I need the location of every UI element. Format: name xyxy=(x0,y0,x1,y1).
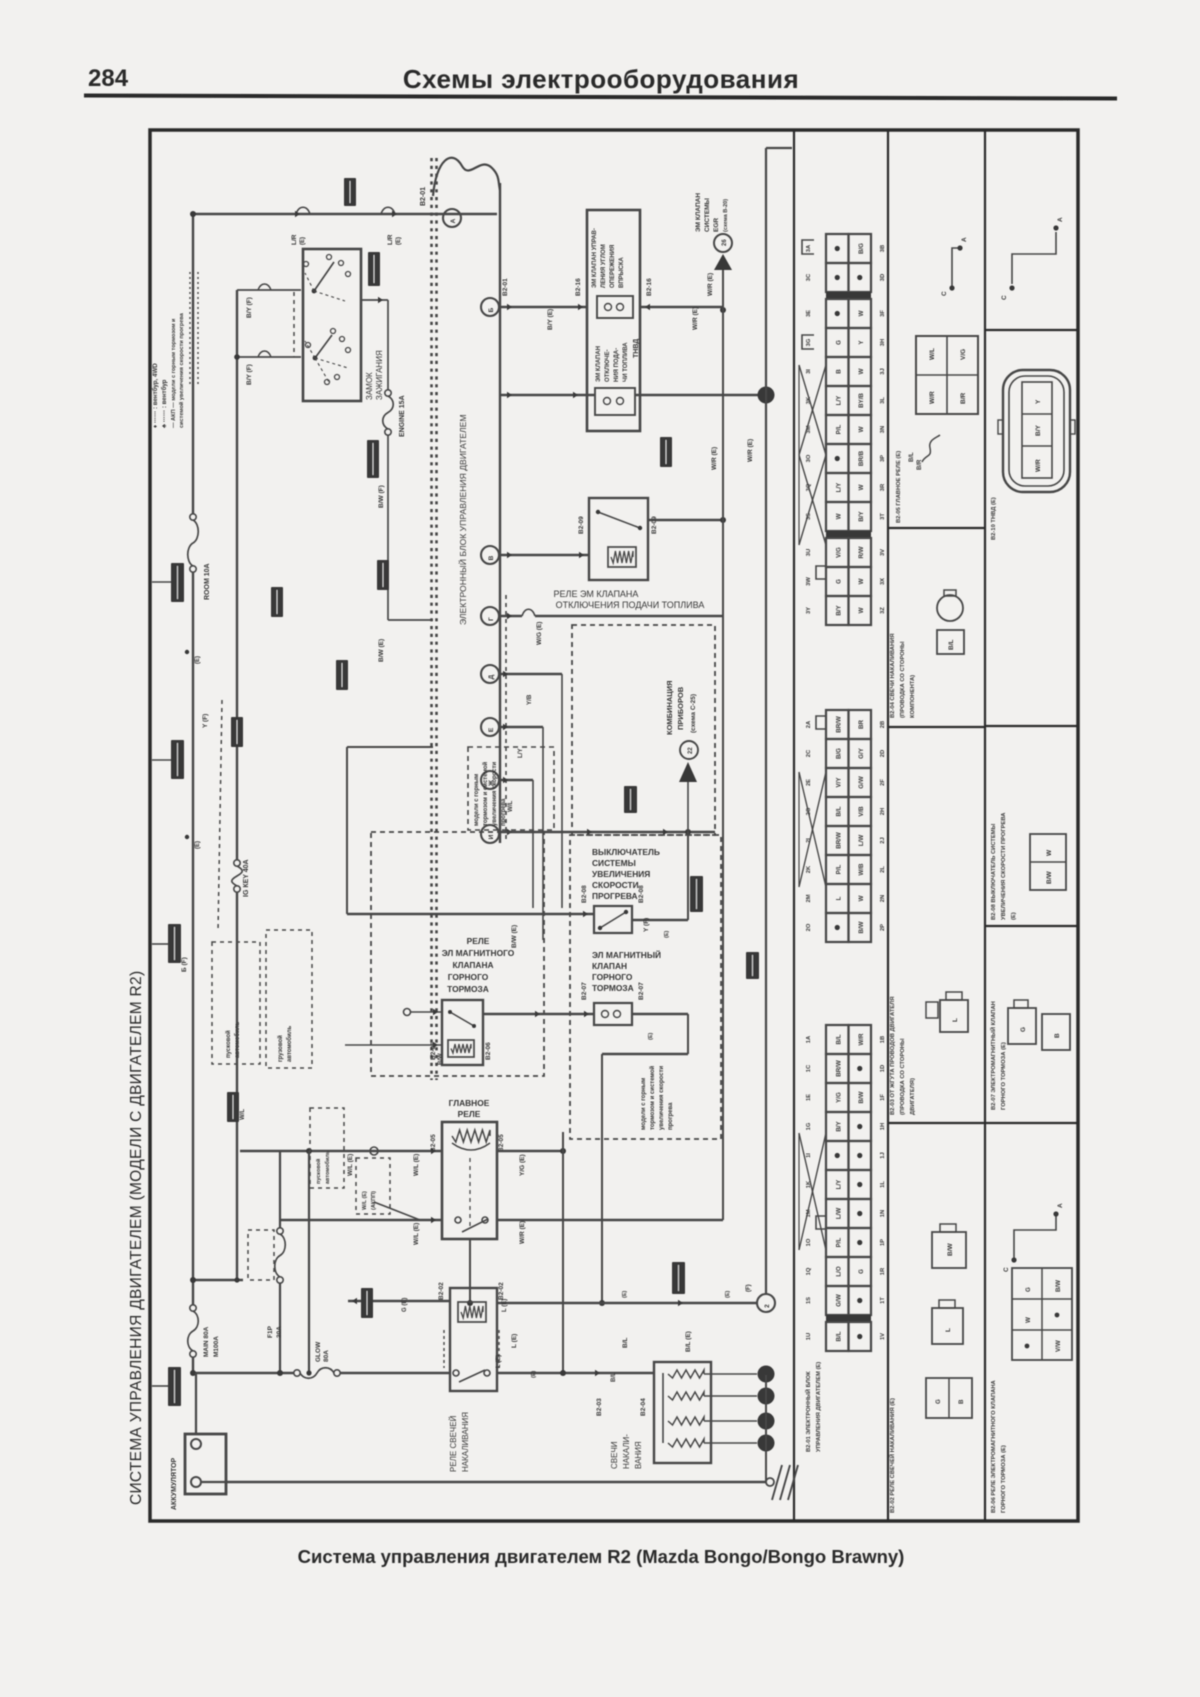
svg-text:W/R (Е): W/R (Е) xyxy=(707,273,714,296)
svg-text:В2-10 ТНВД (Е): В2-10 ТНВД (Е) xyxy=(991,497,997,540)
svg-text:ТОРМОЗА: ТОРМОЗА xyxy=(447,984,489,994)
svg-text:B/W: B/W xyxy=(1055,1280,1062,1292)
svg-text:P/L: P/L xyxy=(835,864,842,874)
svg-text:30А: 30А xyxy=(276,1326,283,1338)
svg-text:G: G xyxy=(835,579,842,584)
svg-text:РЕЛЕ: РЕЛЕ xyxy=(467,936,490,946)
svg-text:W/R (Е): W/R (Е) xyxy=(747,439,754,462)
svg-text:СИСТЕМЫ: СИСТЕМЫ xyxy=(704,198,711,232)
svg-text:BR/B: BR/B xyxy=(858,450,865,466)
svg-text:В2-01: В2-01 xyxy=(420,187,427,206)
svg-text:B: B xyxy=(835,369,842,374)
svg-text:G (Е): G (Е) xyxy=(402,1298,408,1312)
svg-text:Y/G: Y/G xyxy=(835,1092,842,1103)
svg-text:КЛАПАНА: КЛАПАНА xyxy=(452,960,493,970)
svg-text:3I: 3I xyxy=(806,369,812,374)
svg-text:B/L (Е): B/L (Е) xyxy=(685,1331,692,1352)
svg-text:ГОРНОГО: ГОРНОГО xyxy=(592,972,633,982)
svg-text:W/B: W/B xyxy=(858,863,865,876)
svg-text:1I: 1I xyxy=(806,1153,812,1158)
svg-text:W/L (Е): W/L (Е) xyxy=(362,1191,368,1210)
svg-text:Д: Д xyxy=(488,674,495,679)
svg-text:B/G: B/G xyxy=(835,748,842,759)
svg-text:Схемы электрооборудования: Схемы электрооборудования xyxy=(403,64,799,94)
svg-text:B/Y: B/Y xyxy=(1035,425,1042,437)
svg-text:R/W: R/W xyxy=(858,546,865,558)
svg-text:М100А: М100А xyxy=(213,1336,220,1357)
svg-text:ЭМ КЛАПАН УПРАВ-: ЭМ КЛАПАН УПРАВ- xyxy=(592,228,598,288)
svg-text:G: G xyxy=(835,340,842,345)
svg-text:BR/W: BR/W xyxy=(835,716,842,733)
svg-text:В2-09: В2-09 xyxy=(578,516,585,534)
svg-text:(Е): (Е) xyxy=(396,237,402,245)
svg-text:B/L: B/L xyxy=(622,1338,629,1349)
svg-text:1U: 1U xyxy=(806,1333,812,1340)
svg-text:1V: 1V xyxy=(880,1333,886,1340)
svg-text:модели с горным: модели с горным xyxy=(641,1077,647,1130)
svg-text:1A: 1A xyxy=(806,1035,812,1043)
svg-text:ЭЛЕКТРОННЫЙ БЛОК УПРАВЛЕНИЯ ДВ: ЭЛЕКТРОННЫЙ БЛОК УПРАВЛЕНИЯ ДВИГАТЕЛЕМ xyxy=(457,414,468,625)
svg-text:2D: 2D xyxy=(880,750,886,757)
svg-text:3O: 3O xyxy=(806,454,812,462)
svg-text:В2-16: В2-16 xyxy=(646,278,653,296)
svg-text:1O: 1O xyxy=(806,1238,812,1246)
svg-text:(Е): (Е) xyxy=(531,1371,537,1379)
svg-text:B/Y (F): B/Y (F) xyxy=(246,297,253,318)
svg-text:АККУМУЛЯТОР: АККУМУЛЯТОР xyxy=(171,1457,178,1510)
svg-text:ЭМ КЛАПАН: ЭМ КЛАПАН xyxy=(596,346,602,382)
svg-text:В2-08 ВЫКЛЮЧАТЕЛЬ СИСТЕМЫ: В2-08 ВЫКЛЮЧАТЕЛЬ СИСТЕМЫ xyxy=(991,823,997,920)
svg-text:W: W xyxy=(858,368,865,374)
svg-text:В2-06: В2-06 xyxy=(485,1042,492,1060)
svg-text:В2-16: В2-16 xyxy=(575,278,582,296)
svg-text:♦ ⋯⋯ : вентбур, 4WD: ♦ ⋯⋯ : вентбур, 4WD xyxy=(152,363,159,428)
svg-text:ВПРЫСКА: ВПРЫСКА xyxy=(619,256,625,288)
svg-text:2B: 2B xyxy=(880,721,886,728)
svg-text:прогрева: прогрева xyxy=(501,798,507,826)
svg-text:ЗАЖИГАНИЯ: ЗАЖИГАНИЯ xyxy=(375,350,384,400)
svg-text:С: С xyxy=(941,291,948,296)
svg-text:ОТКЛЮЧЕ-: ОТКЛЮЧЕ- xyxy=(605,349,611,382)
svg-text:W: W xyxy=(858,310,865,316)
svg-text:УВЕЛИЧЕНИЯ СКОРОСТИ ПРОГРЕВА: УВЕЛИЧЕНИЯ СКОРОСТИ ПРОГРЕВА xyxy=(1001,812,1007,920)
svg-text:(Е): (Е) xyxy=(664,931,670,939)
svg-text:G/W: G/W xyxy=(858,776,865,789)
svg-text:L/Y: L/Y xyxy=(835,395,842,405)
svg-text:КЛАПАН: КЛАПАН xyxy=(592,961,627,971)
svg-text:ТОРМОЗА: ТОРМОЗА xyxy=(592,983,634,993)
svg-text:А: А xyxy=(1057,217,1064,222)
svg-text:грузовой: грузовой xyxy=(277,1035,284,1062)
svg-text:СКОРОСТИ: СКОРОСТИ xyxy=(592,880,639,890)
svg-text:W: W xyxy=(1046,849,1053,856)
svg-text:1B: 1B xyxy=(880,1036,886,1043)
svg-text:модели с горным: модели с горным xyxy=(474,773,480,826)
svg-text:W/R: W/R xyxy=(1035,459,1042,472)
svg-text:L/W: L/W xyxy=(835,1208,842,1219)
svg-text:В2-03: В2-03 xyxy=(596,1398,603,1416)
svg-text:W/L: W/L xyxy=(240,1109,246,1120)
svg-text:L (Е): L (Е) xyxy=(502,1299,508,1312)
svg-text:Система управления двигателем: Система управления двигателем R2 (Mazda … xyxy=(298,1546,905,1567)
svg-text:В2-02: В2-02 xyxy=(438,1282,445,1300)
svg-text:B/Y: B/Y xyxy=(835,604,842,615)
svg-text:W/L (Е): W/L (Е) xyxy=(413,1154,420,1176)
svg-text:увеличения скорости: увеличения скорости xyxy=(659,1065,665,1130)
svg-text:W: W xyxy=(1025,1317,1032,1323)
svg-text:BR/W: BR/W xyxy=(835,1060,842,1077)
svg-text:Б (F): Б (F) xyxy=(181,957,188,972)
svg-text:Е: Е xyxy=(488,727,495,732)
svg-text:НАКАЛИ-: НАКАЛИ- xyxy=(622,1434,631,1469)
svg-text:1G: 1G xyxy=(806,1122,812,1130)
svg-text:W: W xyxy=(835,513,842,519)
svg-text:Y (F): Y (F) xyxy=(202,714,209,728)
svg-text:1H: 1H xyxy=(880,1123,886,1130)
svg-text:W/R (Е): W/R (Е) xyxy=(711,447,718,470)
svg-text:1C: 1C xyxy=(806,1064,812,1072)
svg-text:B/L: B/L xyxy=(835,1034,842,1044)
svg-text:С: С xyxy=(1001,295,1008,300)
svg-text:прогрева: прогрева xyxy=(668,1102,674,1130)
svg-text:3D: 3D xyxy=(880,274,886,281)
svg-text:W/R: W/R xyxy=(858,1033,865,1046)
svg-text:B/L: B/L xyxy=(611,1372,617,1382)
svg-text:СВЕЧИ: СВЕЧИ xyxy=(610,1441,619,1469)
svg-text:тормозом и системой: тормозом и системой xyxy=(482,761,489,826)
svg-text:пусковой: пусковой xyxy=(225,1030,232,1058)
svg-text:ПРИБОРОВ: ПРИБОРОВ xyxy=(676,686,685,730)
svg-text:80А: 80А xyxy=(323,1350,330,1362)
svg-text:НИЯ ПОДА-: НИЯ ПОДА- xyxy=(614,348,620,382)
svg-text:3A: 3A xyxy=(806,244,812,252)
svg-text:УПРАВЛЕНИЯ ДВИГАТЕЛЕМ (Е): УПРАВЛЕНИЯ ДВИГАТЕЛЕМ (Е) xyxy=(816,1362,822,1452)
svg-text:2K: 2K xyxy=(806,865,812,873)
svg-text:3E: 3E xyxy=(806,310,812,317)
svg-text:пусковой: пусковой xyxy=(315,1159,322,1184)
svg-text:Г: Г xyxy=(488,617,495,621)
svg-text:2P: 2P xyxy=(880,924,886,931)
svg-text:ОТКЛЮЧЕНИЯ ПОДАЧИ ТОПЛИВА: ОТКЛЮЧЕНИЯ ПОДАЧИ ТОПЛИВА xyxy=(556,600,705,610)
svg-text:284: 284 xyxy=(88,65,129,92)
svg-text:(ПРОВОДКА СО СТОРОНЫ: (ПРОВОДКА СО СТОРОНЫ xyxy=(900,1038,906,1115)
svg-text:В2-03 ОТ ЖГУТА ПРОВОДОВ ДВИГАТ: В2-03 ОТ ЖГУТА ПРОВОДОВ ДВИГАТЕЛЯ xyxy=(890,997,896,1115)
svg-text:1S: 1S xyxy=(806,1297,812,1304)
svg-text:3C: 3C xyxy=(806,273,812,281)
svg-text:1N: 1N xyxy=(880,1210,886,1217)
svg-text:W: W xyxy=(858,578,865,584)
svg-text:B/W: B/W xyxy=(858,921,865,933)
svg-text:B/L: B/L xyxy=(948,640,955,651)
svg-text:ДВИГАТЕЛЯ): ДВИГАТЕЛЯ) xyxy=(910,1078,916,1115)
svg-text:W/L: W/L xyxy=(507,800,514,812)
svg-text:V/G: V/G xyxy=(835,547,842,558)
svg-text:ГОРНОГО ТОРМОЗА (Е): ГОРНОГО ТОРМОЗА (Е) xyxy=(1001,1445,1007,1513)
svg-text:С: С xyxy=(1003,1267,1010,1272)
svg-text:В: В xyxy=(488,555,495,560)
svg-text:А: А xyxy=(450,218,457,223)
svg-text:W: W xyxy=(858,484,865,490)
svg-text:BR/W: BR/W xyxy=(835,832,842,849)
svg-text:B/W: B/W xyxy=(1046,871,1053,885)
svg-text:3H: 3H xyxy=(880,339,886,346)
svg-text:3P: 3P xyxy=(880,455,886,462)
svg-text:W/R (Е): W/R (Е) xyxy=(692,307,699,330)
svg-text:L/Y: L/Y xyxy=(835,482,842,492)
svg-text:B/Y: B/Y xyxy=(858,510,865,521)
svg-text:СИСТЕМЫ: СИСТЕМЫ xyxy=(592,858,636,868)
svg-text:GLOW: GLOW xyxy=(315,1341,322,1362)
svg-text:22: 22 xyxy=(688,747,694,754)
svg-text:W/G (Е): W/G (Е) xyxy=(536,622,543,645)
svg-text:В2-07: В2-07 xyxy=(581,982,588,1000)
svg-text:1E: 1E xyxy=(806,1094,812,1101)
svg-text:увеличения скорости: увеличения скорости xyxy=(492,761,498,826)
svg-text:B/W (F): B/W (F) xyxy=(378,485,385,508)
svg-text:А: А xyxy=(1057,1203,1064,1208)
svg-text:B/L: B/L xyxy=(835,806,842,816)
svg-text:V/Y: V/Y xyxy=(835,777,842,788)
svg-text:тормозом и системой: тормозом и системой xyxy=(649,1065,656,1130)
svg-text:3B: 3B xyxy=(880,245,886,252)
svg-text:W/L: W/L xyxy=(929,348,936,360)
svg-text:В2-02: В2-02 xyxy=(498,1282,505,1300)
svg-text:3J: 3J xyxy=(880,368,886,374)
svg-text:РЕЛЕ: РЕЛЕ xyxy=(458,1109,481,1119)
svg-text:3R: 3R xyxy=(880,483,886,491)
svg-text:(Е): (Е) xyxy=(622,1291,628,1299)
svg-text:1D: 1D xyxy=(880,1065,886,1072)
svg-text:ЛЕНИЯ УГЛОМ: ЛЕНИЯ УГЛОМ xyxy=(601,244,607,288)
svg-text:И: И xyxy=(488,834,495,839)
svg-text:1T: 1T xyxy=(880,1297,886,1304)
svg-text:ВЫКЛЮЧАТЕЛЬ: ВЫКЛЮЧАТЕЛЬ xyxy=(592,847,660,857)
svg-text:системой увеличения скорости п: системой увеличения скорости прогрева xyxy=(178,312,185,428)
svg-text:В2-02 РЕЛЕ СВЕЧЕЙ НАКАЛИВАНИЯ: В2-02 РЕЛЕ СВЕЧЕЙ НАКАЛИВАНИЯ (Е) xyxy=(888,1398,896,1513)
svg-text:Y (F): Y (F) xyxy=(643,918,650,932)
svg-text:(Е): (Е) xyxy=(1011,912,1017,920)
svg-text:ЗАМОК: ЗАМОК xyxy=(365,372,374,400)
svg-text:1J: 1J xyxy=(880,1152,886,1158)
svg-text:2H: 2H xyxy=(880,808,886,815)
svg-text:ЭЛ МАГНИТНЫЙ: ЭЛ МАГНИТНЫЙ xyxy=(592,949,661,960)
svg-text:V/W: V/W xyxy=(1055,1340,1062,1352)
svg-text:ЧИ ТОПЛИВА: ЧИ ТОПЛИВА xyxy=(623,342,629,382)
svg-text:В2-06 РЕЛЕ ЭЛЕКТРОМАГНИТНОГО К: В2-06 РЕЛЕ ЭЛЕКТРОМАГНИТНОГО КЛАПАНА xyxy=(991,1379,997,1513)
svg-text:автомобиль: автомобиль xyxy=(234,1021,241,1058)
svg-text:G: G xyxy=(1025,1287,1032,1292)
svg-text:G/Y: G/Y xyxy=(858,747,865,759)
svg-text:B/W: B/W xyxy=(858,1091,865,1103)
svg-text:ТНВД: ТНВД xyxy=(633,339,640,358)
svg-text:МАIN 80А: МАIN 80А xyxy=(203,1326,210,1357)
svg-text:В2-01: В2-01 xyxy=(502,278,509,296)
svg-text:(схема В-20): (схема В-20) xyxy=(723,199,729,232)
svg-text:ВАНИЯ: ВАНИЯ xyxy=(634,1441,643,1469)
svg-text:B: B xyxy=(1054,1033,1061,1038)
svg-text:P/L: P/L xyxy=(835,424,842,434)
svg-text:W: W xyxy=(858,895,865,901)
svg-text:ENGINE 15А: ENGINE 15А xyxy=(399,395,406,437)
svg-text:P/L: P/L xyxy=(835,1237,842,1247)
svg-text:2O: 2O xyxy=(806,923,812,931)
svg-text:2F: 2F xyxy=(880,779,886,786)
svg-text:L/W: L/W xyxy=(858,835,865,846)
svg-text:Б: Б xyxy=(488,307,495,312)
svg-text:2M: 2M xyxy=(806,894,812,902)
svg-text:1Q: 1Q xyxy=(806,1267,812,1275)
svg-text:КОМПОНЕНТА): КОМПОНЕНТА) xyxy=(910,675,916,718)
svg-text:BY/B: BY/B xyxy=(858,393,865,408)
svg-text:3V: 3V xyxy=(880,549,886,556)
svg-text:ГОРНОГО ТОРМОЗА (Е): ГОРНОГО ТОРМОЗА (Е) xyxy=(1001,1042,1007,1110)
svg-text:L (Е): L (Е) xyxy=(496,1355,502,1368)
svg-text:3X: 3X xyxy=(880,578,886,585)
svg-text:В2-08: В2-08 xyxy=(638,885,645,903)
svg-text:G: G xyxy=(935,1399,942,1404)
svg-text:3T: 3T xyxy=(880,513,886,520)
svg-text:А: А xyxy=(961,237,968,242)
svg-text:(Е): (Е) xyxy=(648,1033,654,1041)
svg-text:В2-05 ГЛАВНОЕ РЕЛЕ (Е): В2-05 ГЛАВНОЕ РЕЛЕ (Е) xyxy=(896,451,902,523)
svg-text:W: W xyxy=(858,607,865,613)
svg-text:L/Y: L/Y xyxy=(835,1179,842,1189)
svg-text:B/Y: B/Y xyxy=(835,1120,842,1131)
svg-text:3L: 3L xyxy=(880,397,886,404)
svg-text:2J: 2J xyxy=(880,837,886,843)
svg-text:(Е): (Е) xyxy=(300,237,306,245)
svg-text:3F: 3F xyxy=(880,310,886,317)
svg-text:ПРОГРЕВА: ПРОГРЕВА xyxy=(592,891,638,901)
svg-text:G: G xyxy=(858,1269,865,1274)
svg-text:РЕЛЕ ЭМ КЛАПАНА: РЕЛЕ ЭМ КЛАПАНА xyxy=(554,589,639,599)
svg-text:V/G: V/G xyxy=(960,349,967,360)
svg-text:RООМ 10А: RООМ 10А xyxy=(204,563,211,600)
svg-text:В2-04: В2-04 xyxy=(640,1398,647,1416)
svg-text:ГЛАВНОЕ: ГЛАВНОЕ xyxy=(449,1098,490,1108)
svg-text:W/R (Е): W/R (Е) xyxy=(519,1221,526,1244)
svg-text:(Е): (Е) xyxy=(195,841,201,849)
svg-text:V/B: V/B xyxy=(858,806,865,817)
svg-text:(Е): (Е) xyxy=(725,1291,731,1299)
svg-text:B/L: B/L xyxy=(909,452,915,462)
svg-text:G/W: G/W xyxy=(835,1294,842,1307)
svg-text:автомобиль: автомобиль xyxy=(286,1025,293,1062)
svg-text:B: B xyxy=(958,1399,965,1404)
svg-text:B/W: B/W xyxy=(947,1243,954,1257)
svg-text:СИСТЕМА УПРАВЛЕНИЯ ДВИГАТЕЛЕМ: СИСТЕМА УПРАВЛЕНИЯ ДВИГАТЕЛЕМ (МОДЕЛИ С … xyxy=(128,971,145,1505)
svg-text:B/Y (F): B/Y (F) xyxy=(246,364,253,385)
svg-text:ОПЕРЕЖЕНИЯ: ОПЕРЕЖЕНИЯ xyxy=(610,245,616,288)
svg-text:W/R: W/R xyxy=(929,391,936,404)
svg-text:В2-01 ЭЛЕКТРОННЫЙ БЛОК: В2-01 ЭЛЕКТРОННЫЙ БЛОК xyxy=(804,1371,812,1452)
svg-text:автомобиль: автомобиль xyxy=(324,1150,331,1184)
svg-text:L/O: L/O xyxy=(835,1266,842,1276)
svg-text:(F): (F) xyxy=(746,1284,752,1292)
svg-text:В2-04 СВЕЧИ НАКАЛИВАНИЯ: В2-04 СВЕЧИ НАКАЛИВАНИЯ xyxy=(890,634,896,719)
svg-text:— АКП — модели с горным тормоз: — АКП — модели с горным тормозом и xyxy=(171,318,177,428)
svg-text:РЕЛЕ СВЕЧЕЙ: РЕЛЕ СВЕЧЕЙ xyxy=(449,1415,458,1472)
svg-text:2N: 2N xyxy=(880,895,886,902)
svg-text:2A: 2A xyxy=(806,720,812,728)
svg-text:Y/G (Е): Y/G (Е) xyxy=(519,1154,526,1176)
svg-text:3U: 3U xyxy=(806,549,812,556)
svg-text:КОМБИНАЦИЯ: КОМБИНАЦИЯ xyxy=(665,680,674,735)
svg-text:ЭЛ МАГНИТНОГО: ЭЛ МАГНИТНОГО xyxy=(442,948,515,958)
svg-text:(АКПП): (АКПП) xyxy=(371,1191,377,1210)
svg-text:L/R: L/R xyxy=(291,234,298,245)
svg-text:3Z: 3Z xyxy=(880,607,886,614)
svg-text:3G: 3G xyxy=(806,338,812,346)
svg-text:B/R: B/R xyxy=(960,393,967,405)
svg-text:(Е): (Е) xyxy=(195,656,201,664)
svg-text:1P: 1P xyxy=(880,1239,886,1246)
svg-text:ЕGR: ЕGR xyxy=(713,218,720,232)
svg-text:L (Е): L (Е) xyxy=(511,1334,518,1348)
svg-text:B/W (Е): B/W (Е) xyxy=(511,925,518,948)
svg-text:B/L: B/L xyxy=(835,1331,842,1341)
svg-text:1L: 1L xyxy=(880,1181,886,1188)
svg-text:L: L xyxy=(835,896,842,900)
svg-text:F1Р: F1Р xyxy=(267,1325,274,1338)
svg-text:ЭМ КЛАПАН: ЭМ КЛАПАН xyxy=(695,193,702,232)
svg-text:L: L xyxy=(945,1328,952,1332)
svg-text:L/R: L/R xyxy=(387,234,394,245)
svg-text:2C: 2C xyxy=(806,749,812,757)
svg-text:В2-07: В2-07 xyxy=(638,982,645,1000)
svg-text:IG КЕY 40А: IG КЕY 40А xyxy=(243,859,250,897)
svg-text:♣ ⋯⋯ : вентбур: ♣ ⋯⋯ : вентбур xyxy=(161,379,168,428)
svg-text:2: 2 xyxy=(764,1304,771,1308)
svg-text:ГОРНОГО: ГОРНОГО xyxy=(448,972,489,982)
svg-text:L: L xyxy=(952,1018,959,1022)
svg-text:Y/B: Y/B xyxy=(526,694,533,705)
svg-text:УВЕЛИЧЕНИЯ: УВЕЛИЧЕНИЯ xyxy=(592,869,650,879)
svg-text:3Y: 3Y xyxy=(806,607,812,614)
svg-text:W/L (Е): W/L (Е) xyxy=(413,1223,420,1245)
svg-text:26: 26 xyxy=(722,239,728,246)
svg-text:В2-09: В2-09 xyxy=(651,516,658,534)
svg-text:НАКАЛИВАНИЯ: НАКАЛИВАНИЯ xyxy=(461,1412,470,1472)
svg-text:B/W (Е): B/W (Е) xyxy=(378,639,385,662)
svg-text:B/G: B/G xyxy=(858,243,865,254)
svg-text:Y: Y xyxy=(1035,399,1042,404)
svg-text:W: W xyxy=(858,426,865,432)
svg-text:В2-05: В2-05 xyxy=(498,1134,505,1152)
svg-text:В2-08: В2-08 xyxy=(581,885,588,903)
svg-text:2L: 2L xyxy=(880,866,886,873)
svg-text:B/R: B/R xyxy=(917,459,923,470)
svg-text:B/Y (Е): B/Y (Е) xyxy=(547,309,554,330)
svg-text:W/L (Е): W/L (Е) xyxy=(347,1154,354,1176)
svg-text:G: G xyxy=(1020,1027,1027,1032)
svg-text:(схема С-25): (схема С-25) xyxy=(690,694,697,733)
svg-text:L/Y: L/Y xyxy=(517,748,524,758)
svg-text:1F: 1F xyxy=(880,1094,886,1101)
svg-text:1R: 1R xyxy=(880,1267,886,1275)
svg-text:В2-07 ЭЛЕКТРОМАГНИТНЫЙ КЛАПАН: В2-07 ЭЛЕКТРОМАГНИТНЫЙ КЛАПАН xyxy=(989,1001,997,1110)
svg-text:3W: 3W xyxy=(806,577,812,586)
svg-text:B/W: B/W xyxy=(438,1053,444,1065)
svg-text:(ПРОВОДКА СО СТОРОНЫ: (ПРОВОДКА СО СТОРОНЫ xyxy=(900,641,906,718)
svg-text:BR: BR xyxy=(858,720,865,729)
svg-text:3N: 3N xyxy=(880,426,886,433)
svg-text:2E: 2E xyxy=(806,779,812,786)
